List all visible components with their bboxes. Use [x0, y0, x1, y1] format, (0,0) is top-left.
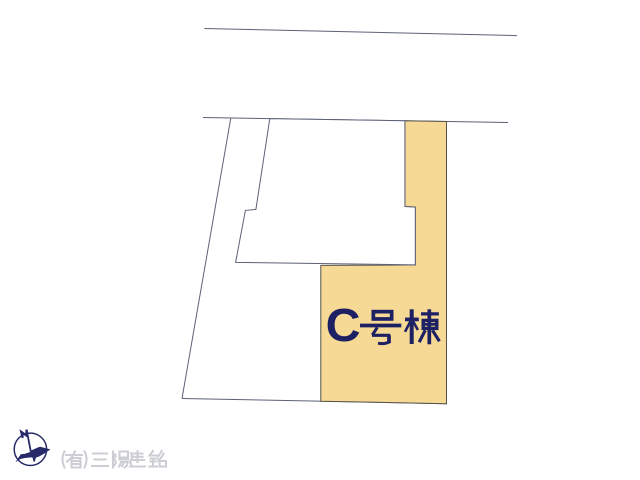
svg-text:C: C — [326, 299, 361, 351]
